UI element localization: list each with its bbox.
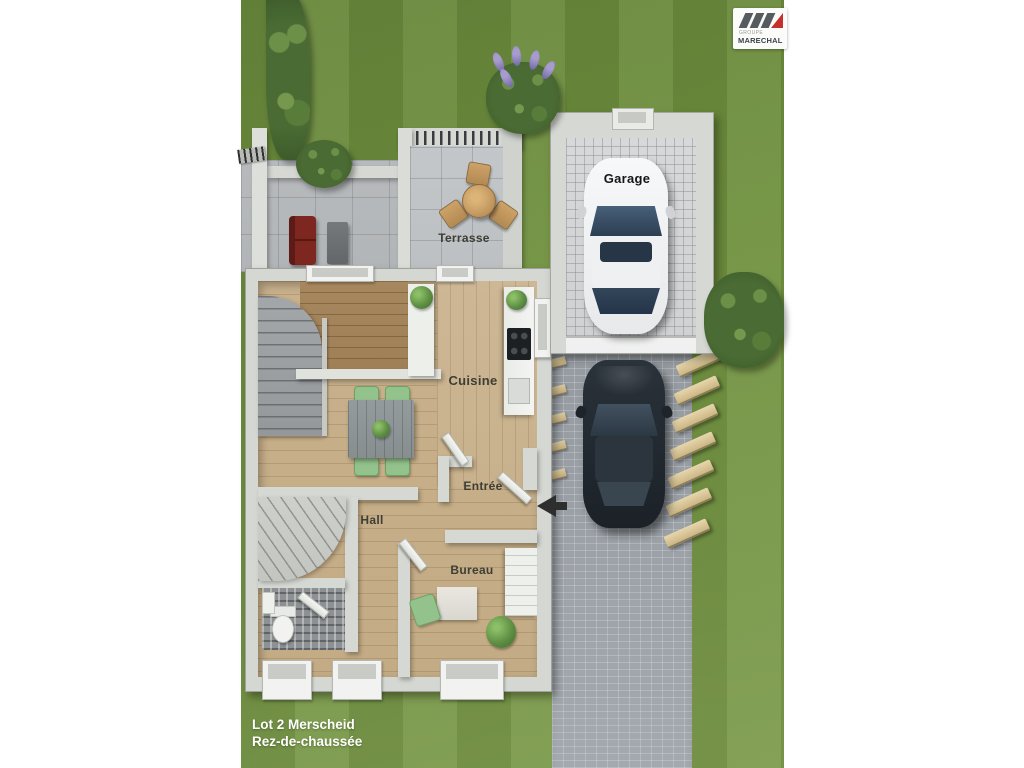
hedge-left [266,0,310,160]
plan-caption: Lot 2 Merscheid Rez-de-chaussée [252,716,362,750]
bureau-plant [486,616,516,648]
groupe-marechal-logo: GROUPE MARECHAL [733,8,787,49]
wall-entree-v [438,456,449,502]
window-east-kitchen [534,298,551,358]
dining-chair [354,456,379,476]
dark-car-windshield [590,404,658,436]
cooktop [507,328,531,360]
terrace-pergola-slats [408,131,516,145]
lavender-flower [498,67,516,89]
bush-lavender [486,62,560,134]
wall-bureau-north [445,530,537,543]
kitchen-sink [508,378,530,404]
cuisine-label: Cuisine [438,373,508,388]
bureau-shelf [505,548,537,616]
terrace-chair [465,161,491,187]
wall-bureau-west [398,543,410,677]
bureau-label: Bureau [440,563,504,577]
dining-chair [385,456,410,476]
white-car-sunroof [600,242,652,262]
toilet-bowl [272,615,294,643]
garage-label: Garage [586,171,668,186]
dark-car-rear-window [597,482,651,506]
garage-door-sill [566,336,696,353]
entrance-arrow-icon [537,494,569,518]
caption-lot: Lot 2 Merscheid [252,716,362,733]
table-centerpiece-plant [372,420,390,438]
floor-plan-rendering: Terrasse Garage Cuisine Entrée Hall Bure… [0,0,1024,768]
window-south-1 [262,660,312,700]
terrasse-label: Terrasse [418,231,510,245]
potted-plant [410,286,433,309]
logo-triangle-icon [771,13,783,28]
window-north-1 [306,265,374,282]
window-south-2 [332,660,382,700]
logo-name-text: MARECHAL [738,36,783,45]
dark-car-hood-shine [593,366,655,396]
window-north-2 [436,265,474,282]
garage-roof-notch-inner [618,112,646,123]
coffee-table [327,222,348,264]
bureau-desk [437,587,477,620]
dark-car-roof [595,436,653,482]
terrace-round-table [462,184,496,218]
bush-garage-east [704,272,784,368]
wc-sink [262,592,275,614]
bush-patio-corner [296,140,352,188]
window-south-3 [440,660,504,700]
caption-floor: Rez-de-chaussée [252,733,362,750]
hall-label: Hall [346,513,398,527]
wall-entree-pillar [523,448,537,490]
white-car-rear-window [592,288,660,314]
kitchen-plant [506,290,527,310]
entree-label: Entrée [452,479,514,493]
red-sofa-cushion-line [295,239,316,241]
white-car-windshield [590,206,662,236]
dark-car [583,360,665,528]
